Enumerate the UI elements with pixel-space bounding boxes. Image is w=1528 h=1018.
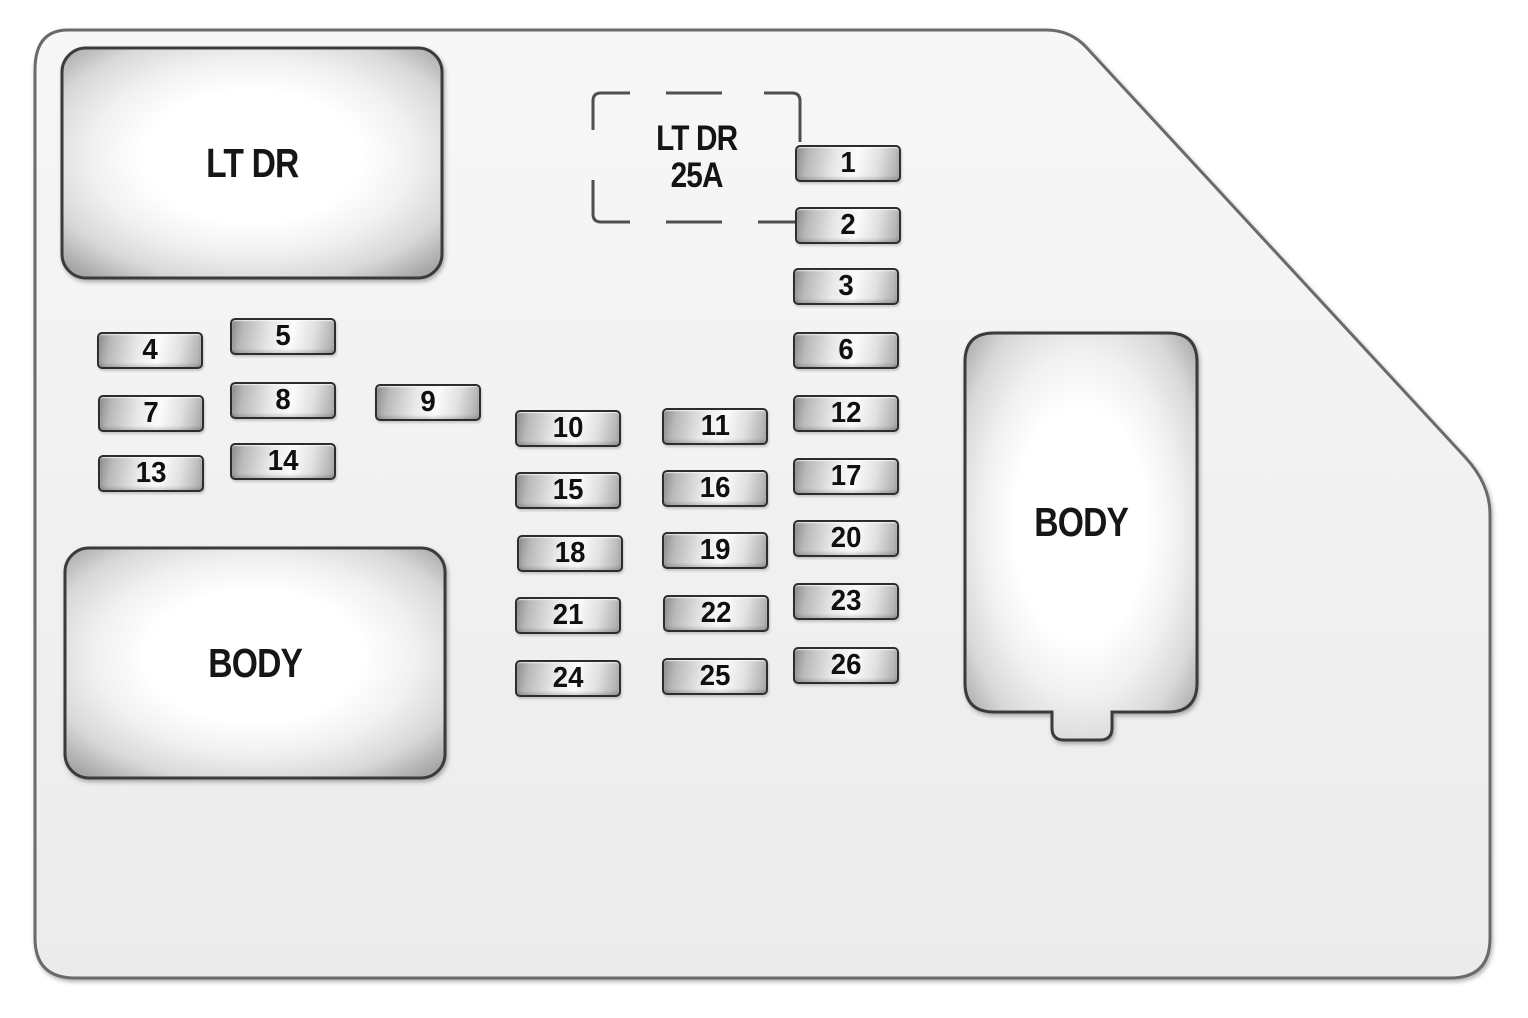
fuse-9: 9 xyxy=(375,384,481,421)
fuse-20: 20 xyxy=(793,520,899,557)
fuse-12: 12 xyxy=(793,395,899,432)
fuse-number: 19 xyxy=(700,536,731,565)
fuse-number: 26 xyxy=(831,651,862,680)
panel-outline-svg xyxy=(0,0,1528,1018)
fuse-number: 12 xyxy=(831,399,862,428)
fuse-24: 24 xyxy=(515,660,621,697)
fuse-number: 20 xyxy=(831,524,862,553)
fuse-26: 26 xyxy=(793,647,899,684)
fuse-number: 8 xyxy=(275,386,290,415)
fuse-number: 23 xyxy=(831,587,862,616)
fuse-number: 16 xyxy=(700,474,731,503)
fuse-16: 16 xyxy=(662,470,768,507)
fuse-13: 13 xyxy=(98,455,204,492)
fuse-19: 19 xyxy=(662,532,768,569)
fuse-number: 9 xyxy=(420,388,435,417)
fuse-number: 22 xyxy=(701,599,732,628)
fuse-number: 2 xyxy=(840,211,855,240)
fuse-14: 14 xyxy=(230,443,336,480)
fuse-number: 7 xyxy=(143,399,158,428)
fuse-number: 5 xyxy=(275,322,290,351)
fuse-18: 18 xyxy=(517,535,623,572)
fuse-1: 1 xyxy=(795,145,901,182)
fuse-23: 23 xyxy=(793,583,899,620)
fuse-number: 14 xyxy=(268,447,299,476)
fuse-17: 17 xyxy=(793,458,899,495)
fuse-number: 18 xyxy=(555,539,586,568)
fuse-22: 22 xyxy=(663,595,769,632)
fuse-number: 1 xyxy=(840,149,855,178)
fuse-10: 10 xyxy=(515,410,621,447)
fuse-25: 25 xyxy=(662,658,768,695)
fuse-box-diagram: LT DR BODY BODY LT DR 25A 12345678910111… xyxy=(0,0,1528,1018)
fuse-21: 21 xyxy=(515,597,621,634)
fuse-number: 17 xyxy=(831,462,862,491)
fuse-7: 7 xyxy=(98,395,204,432)
fuse-number: 6 xyxy=(838,336,853,365)
relay-block-body-bottom xyxy=(65,548,445,778)
fuse-number: 21 xyxy=(553,601,584,630)
fuse-number: 13 xyxy=(136,459,167,488)
fuse-5: 5 xyxy=(230,318,336,355)
fuse-number: 25 xyxy=(700,662,731,691)
fuse-2: 2 xyxy=(795,207,901,244)
fuse-3: 3 xyxy=(793,268,899,305)
fuse-number: 10 xyxy=(553,414,584,443)
fuse-4: 4 xyxy=(97,332,203,369)
fuse-number: 11 xyxy=(700,412,729,441)
fuse-number: 24 xyxy=(553,664,584,693)
fuse-number: 3 xyxy=(838,272,853,301)
fuse-15: 15 xyxy=(515,472,621,509)
relay-block-body-right xyxy=(965,333,1197,740)
fuse-number: 15 xyxy=(553,476,584,505)
fuse-11: 11 xyxy=(662,408,768,445)
relay-block-lt-dr xyxy=(62,48,442,278)
fuse-number: 4 xyxy=(142,336,157,365)
fuse-8: 8 xyxy=(230,382,336,419)
fuse-6: 6 xyxy=(793,332,899,369)
